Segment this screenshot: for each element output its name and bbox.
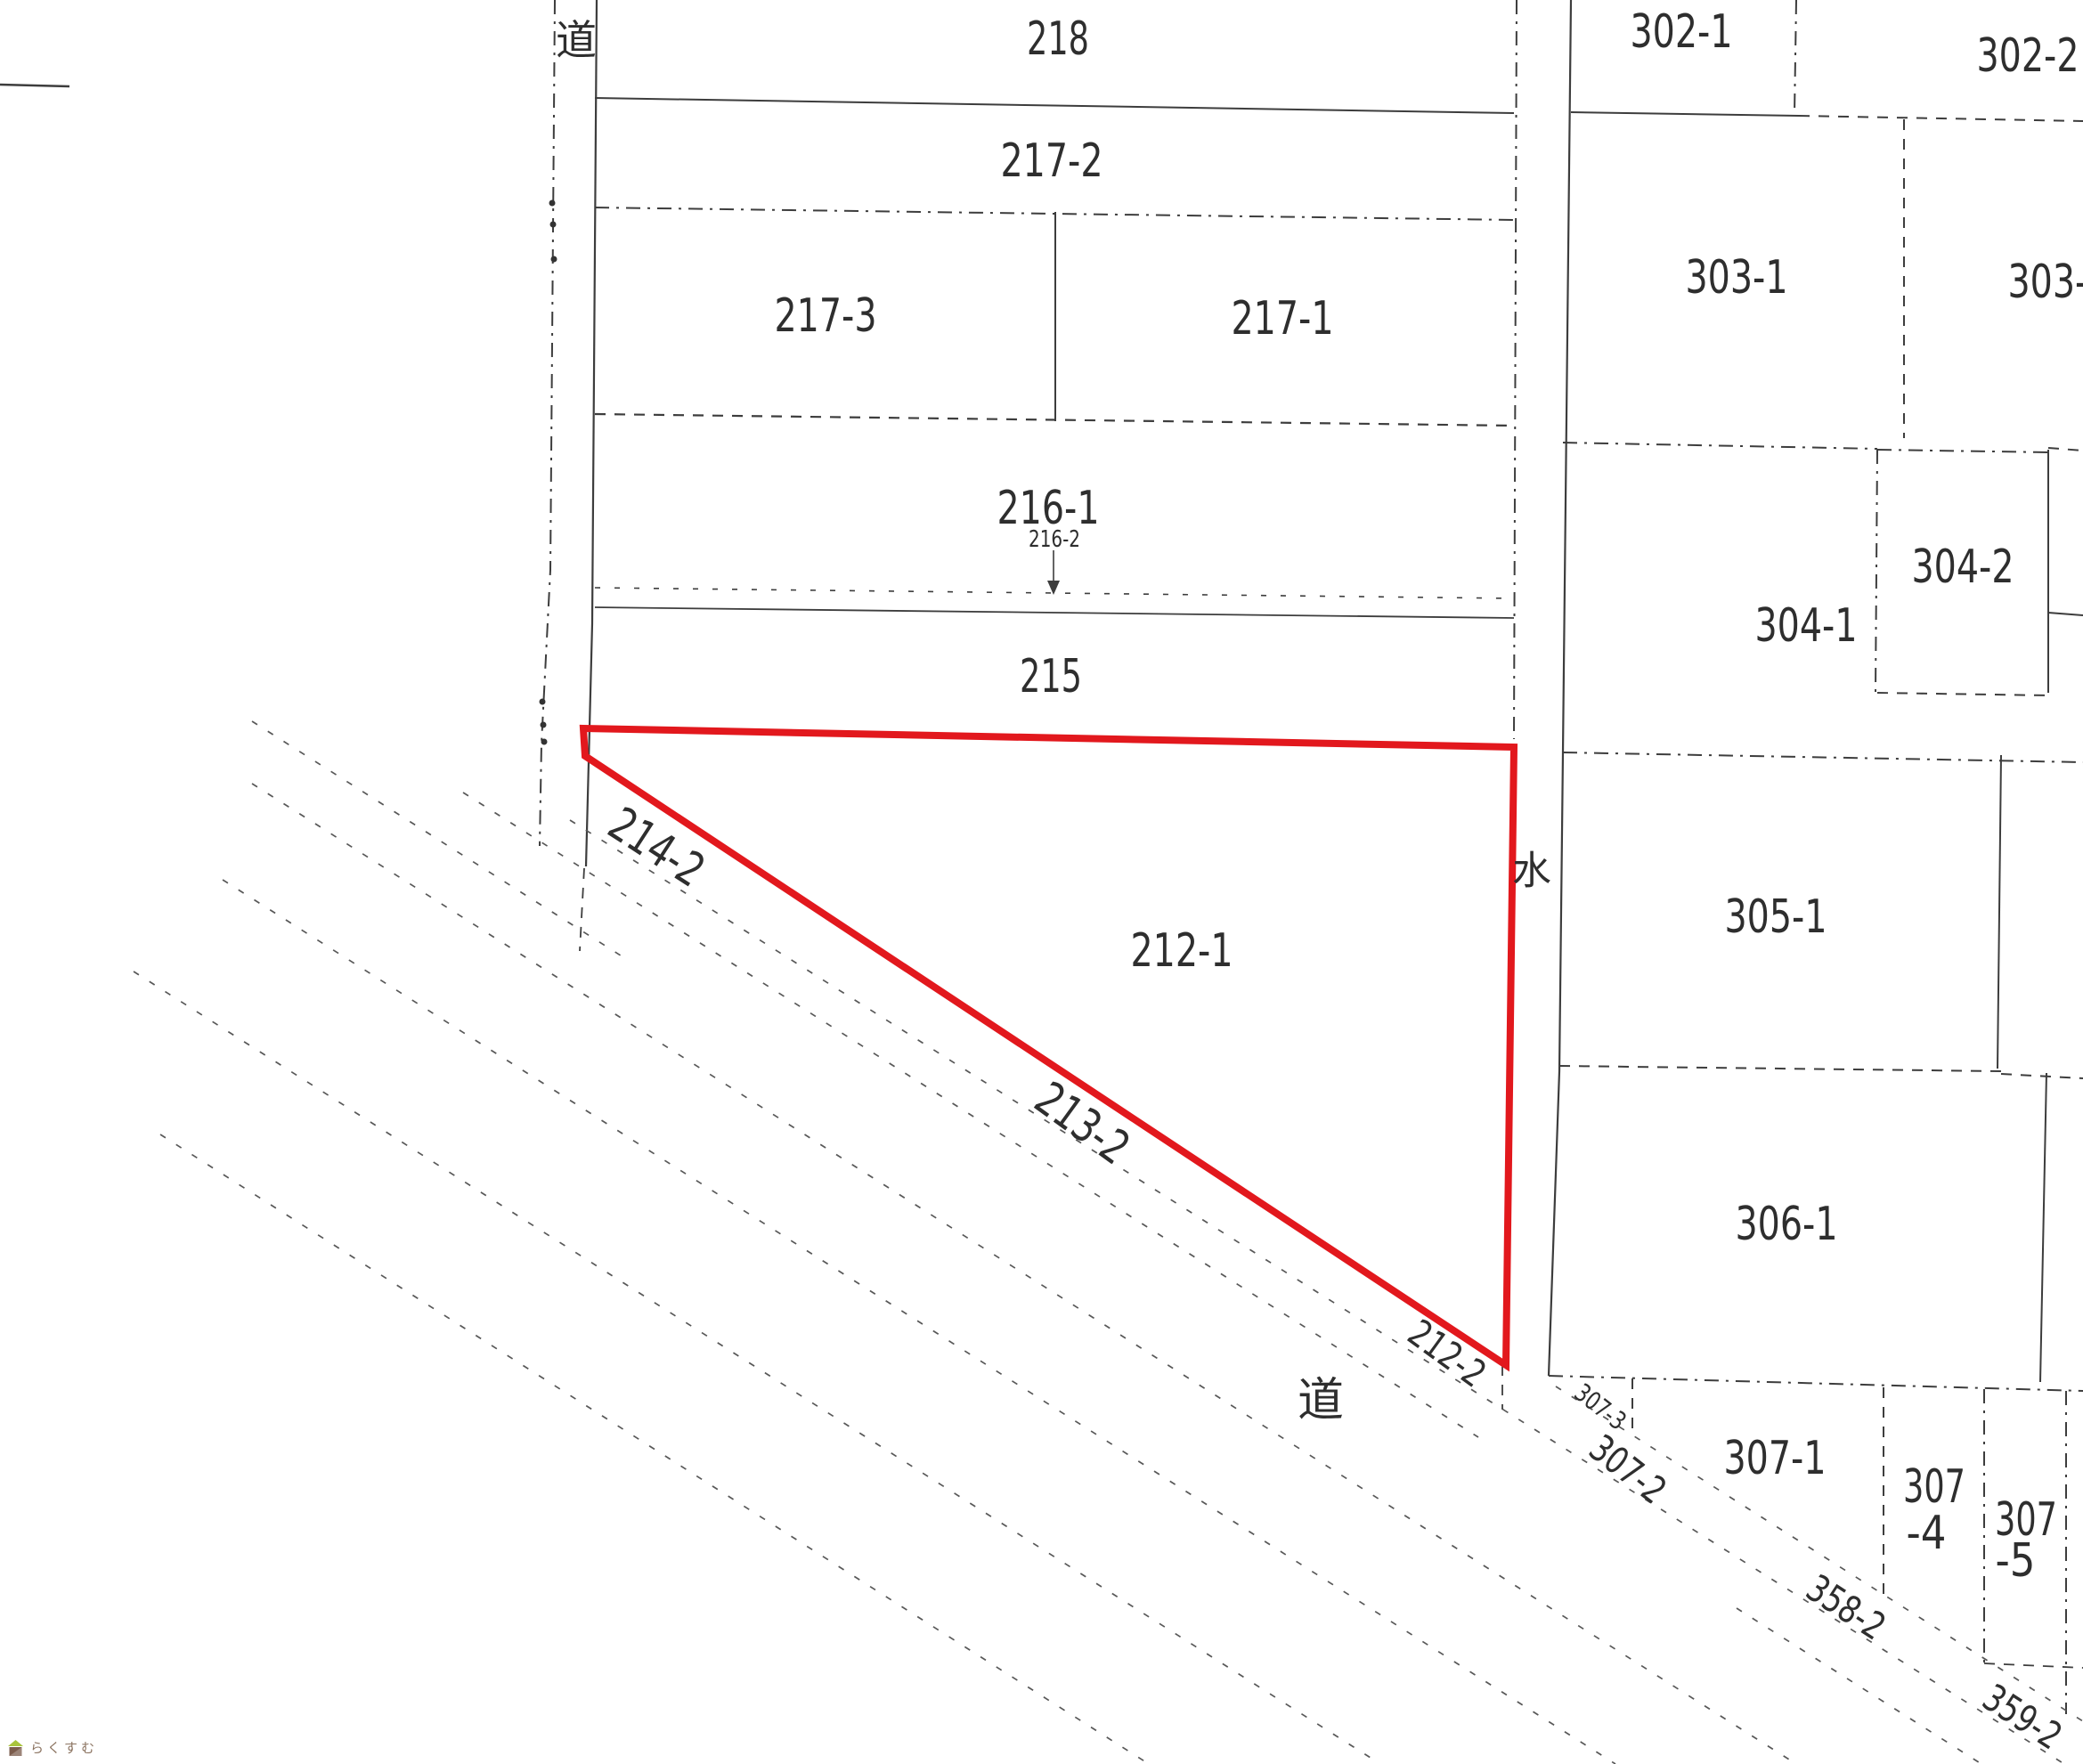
parcel-label-307-5b: -5 bbox=[1996, 1534, 2036, 1588]
road-diagonal bbox=[223, 880, 1615, 1764]
parcel-label-216-2: 216-2 bbox=[1029, 526, 1080, 553]
parcel-label-307-4b: -4 bbox=[1907, 1507, 1947, 1560]
cadastral-map-page: { "map": { "background": "#ffffff", "ink… bbox=[0, 0, 2083, 1764]
edge-305-right bbox=[1998, 755, 2001, 1069]
divider-302 bbox=[1794, 0, 1796, 114]
parcel-label-212-1: 212-1 bbox=[1131, 924, 1233, 978]
parcel-label-218: 218 bbox=[1027, 12, 1089, 66]
road-diagonal bbox=[463, 793, 1478, 1437]
boundary-302-303-west bbox=[1571, 112, 1799, 116]
survey-point-dot bbox=[541, 722, 547, 728]
boundary-216-2-215 bbox=[595, 607, 1514, 618]
parcel-label-306-1: 306-1 bbox=[1736, 1198, 1838, 1251]
watermark: らくすむ bbox=[7, 1736, 98, 1760]
parcel-label-307-4a: 307 bbox=[1903, 1460, 1965, 1514]
water-label: 水 bbox=[1512, 849, 1551, 894]
parcel-label-302-1: 302-1 bbox=[1631, 5, 1733, 59]
road-diagonal bbox=[252, 784, 1796, 1764]
survey-point-dot bbox=[549, 200, 556, 207]
boundary-304-305 bbox=[1563, 752, 2083, 762]
boundary-303-304-east bbox=[2048, 448, 2083, 451]
edge-306-right bbox=[2040, 1073, 2046, 1382]
road-label-top: 道 bbox=[556, 16, 597, 64]
parcel-label-217-3: 217-3 bbox=[775, 289, 877, 343]
boundary-parcel-right-304-2 bbox=[2048, 613, 2083, 615]
parcel-label-217-1: 217-1 bbox=[1232, 292, 1334, 345]
boundary-305-306-west bbox=[1559, 1066, 2001, 1071]
survey-point-dot bbox=[551, 256, 557, 263]
boundary-305-306-east bbox=[2001, 1074, 2083, 1078]
boundary-306-307 bbox=[1549, 1376, 2083, 1391]
road-diagonal bbox=[252, 721, 623, 957]
parcel-label-304-1: 304-1 bbox=[1755, 599, 1858, 653]
block-west-edge bbox=[586, 0, 597, 866]
highlighted-parcel-outline-212-1 bbox=[583, 728, 1514, 1365]
boundary-218-217-2 bbox=[595, 98, 1514, 113]
parcel-label-214-2: 214-2 bbox=[598, 798, 713, 898]
cadastral-map-svg: 道218217-2217-3217-1216-1216-2215214-2212… bbox=[0, 0, 2083, 1764]
parcel-label-305-1: 305-1 bbox=[1725, 890, 1827, 944]
parcel-label-359-2: 359-2 bbox=[1975, 1676, 2070, 1759]
boundary-303-304-mid bbox=[1877, 450, 2048, 452]
watermark-text: らくすむ bbox=[30, 1742, 98, 1755]
map-canvas: 道218217-2217-3217-1216-1216-2215214-2212… bbox=[0, 0, 2083, 1764]
boundary-303-304-west bbox=[1563, 443, 1877, 449]
right-column-west-edge bbox=[1549, 0, 1571, 1376]
survey-point-dot bbox=[540, 699, 546, 705]
survey-point-dot bbox=[550, 222, 557, 228]
box-304-2-bottom bbox=[1877, 693, 2048, 695]
parcel-label-304-2: 304-2 bbox=[1912, 541, 2014, 594]
parcel-label-303-1: 303-1 bbox=[1686, 251, 1788, 305]
parcel-label-307-2: 307-2 bbox=[1581, 1426, 1674, 1512]
parcel-label-358-2: 358-2 bbox=[1799, 1566, 1893, 1649]
boundary-302-303-east bbox=[1799, 116, 2083, 121]
road-label-bottom: 道 bbox=[1298, 1374, 1344, 1427]
block-west-edge-ext bbox=[580, 868, 584, 951]
parcel-label-215: 215 bbox=[1020, 650, 1082, 703]
parcel-label-217-2: 217-2 bbox=[1001, 134, 1103, 188]
box-304-2-left bbox=[1876, 450, 1877, 693]
survey-point-dot bbox=[541, 739, 548, 745]
road-diagonal bbox=[160, 1134, 1149, 1764]
road-west-edge bbox=[540, 0, 555, 846]
parcel-label-307-1: 307-1 bbox=[1724, 1432, 1827, 1485]
road-diagonal bbox=[134, 971, 1380, 1764]
parcel-label-302-2: 302-2 bbox=[1977, 29, 2079, 83]
block-east-edge bbox=[1514, 0, 1517, 739]
parcel-label-307-3: 307-3 bbox=[1569, 1378, 1632, 1435]
house-logo-icon bbox=[7, 1739, 24, 1757]
parcel-label-303-2: 303-2 bbox=[2008, 256, 2083, 309]
corner-mark-top-left bbox=[0, 85, 69, 86]
